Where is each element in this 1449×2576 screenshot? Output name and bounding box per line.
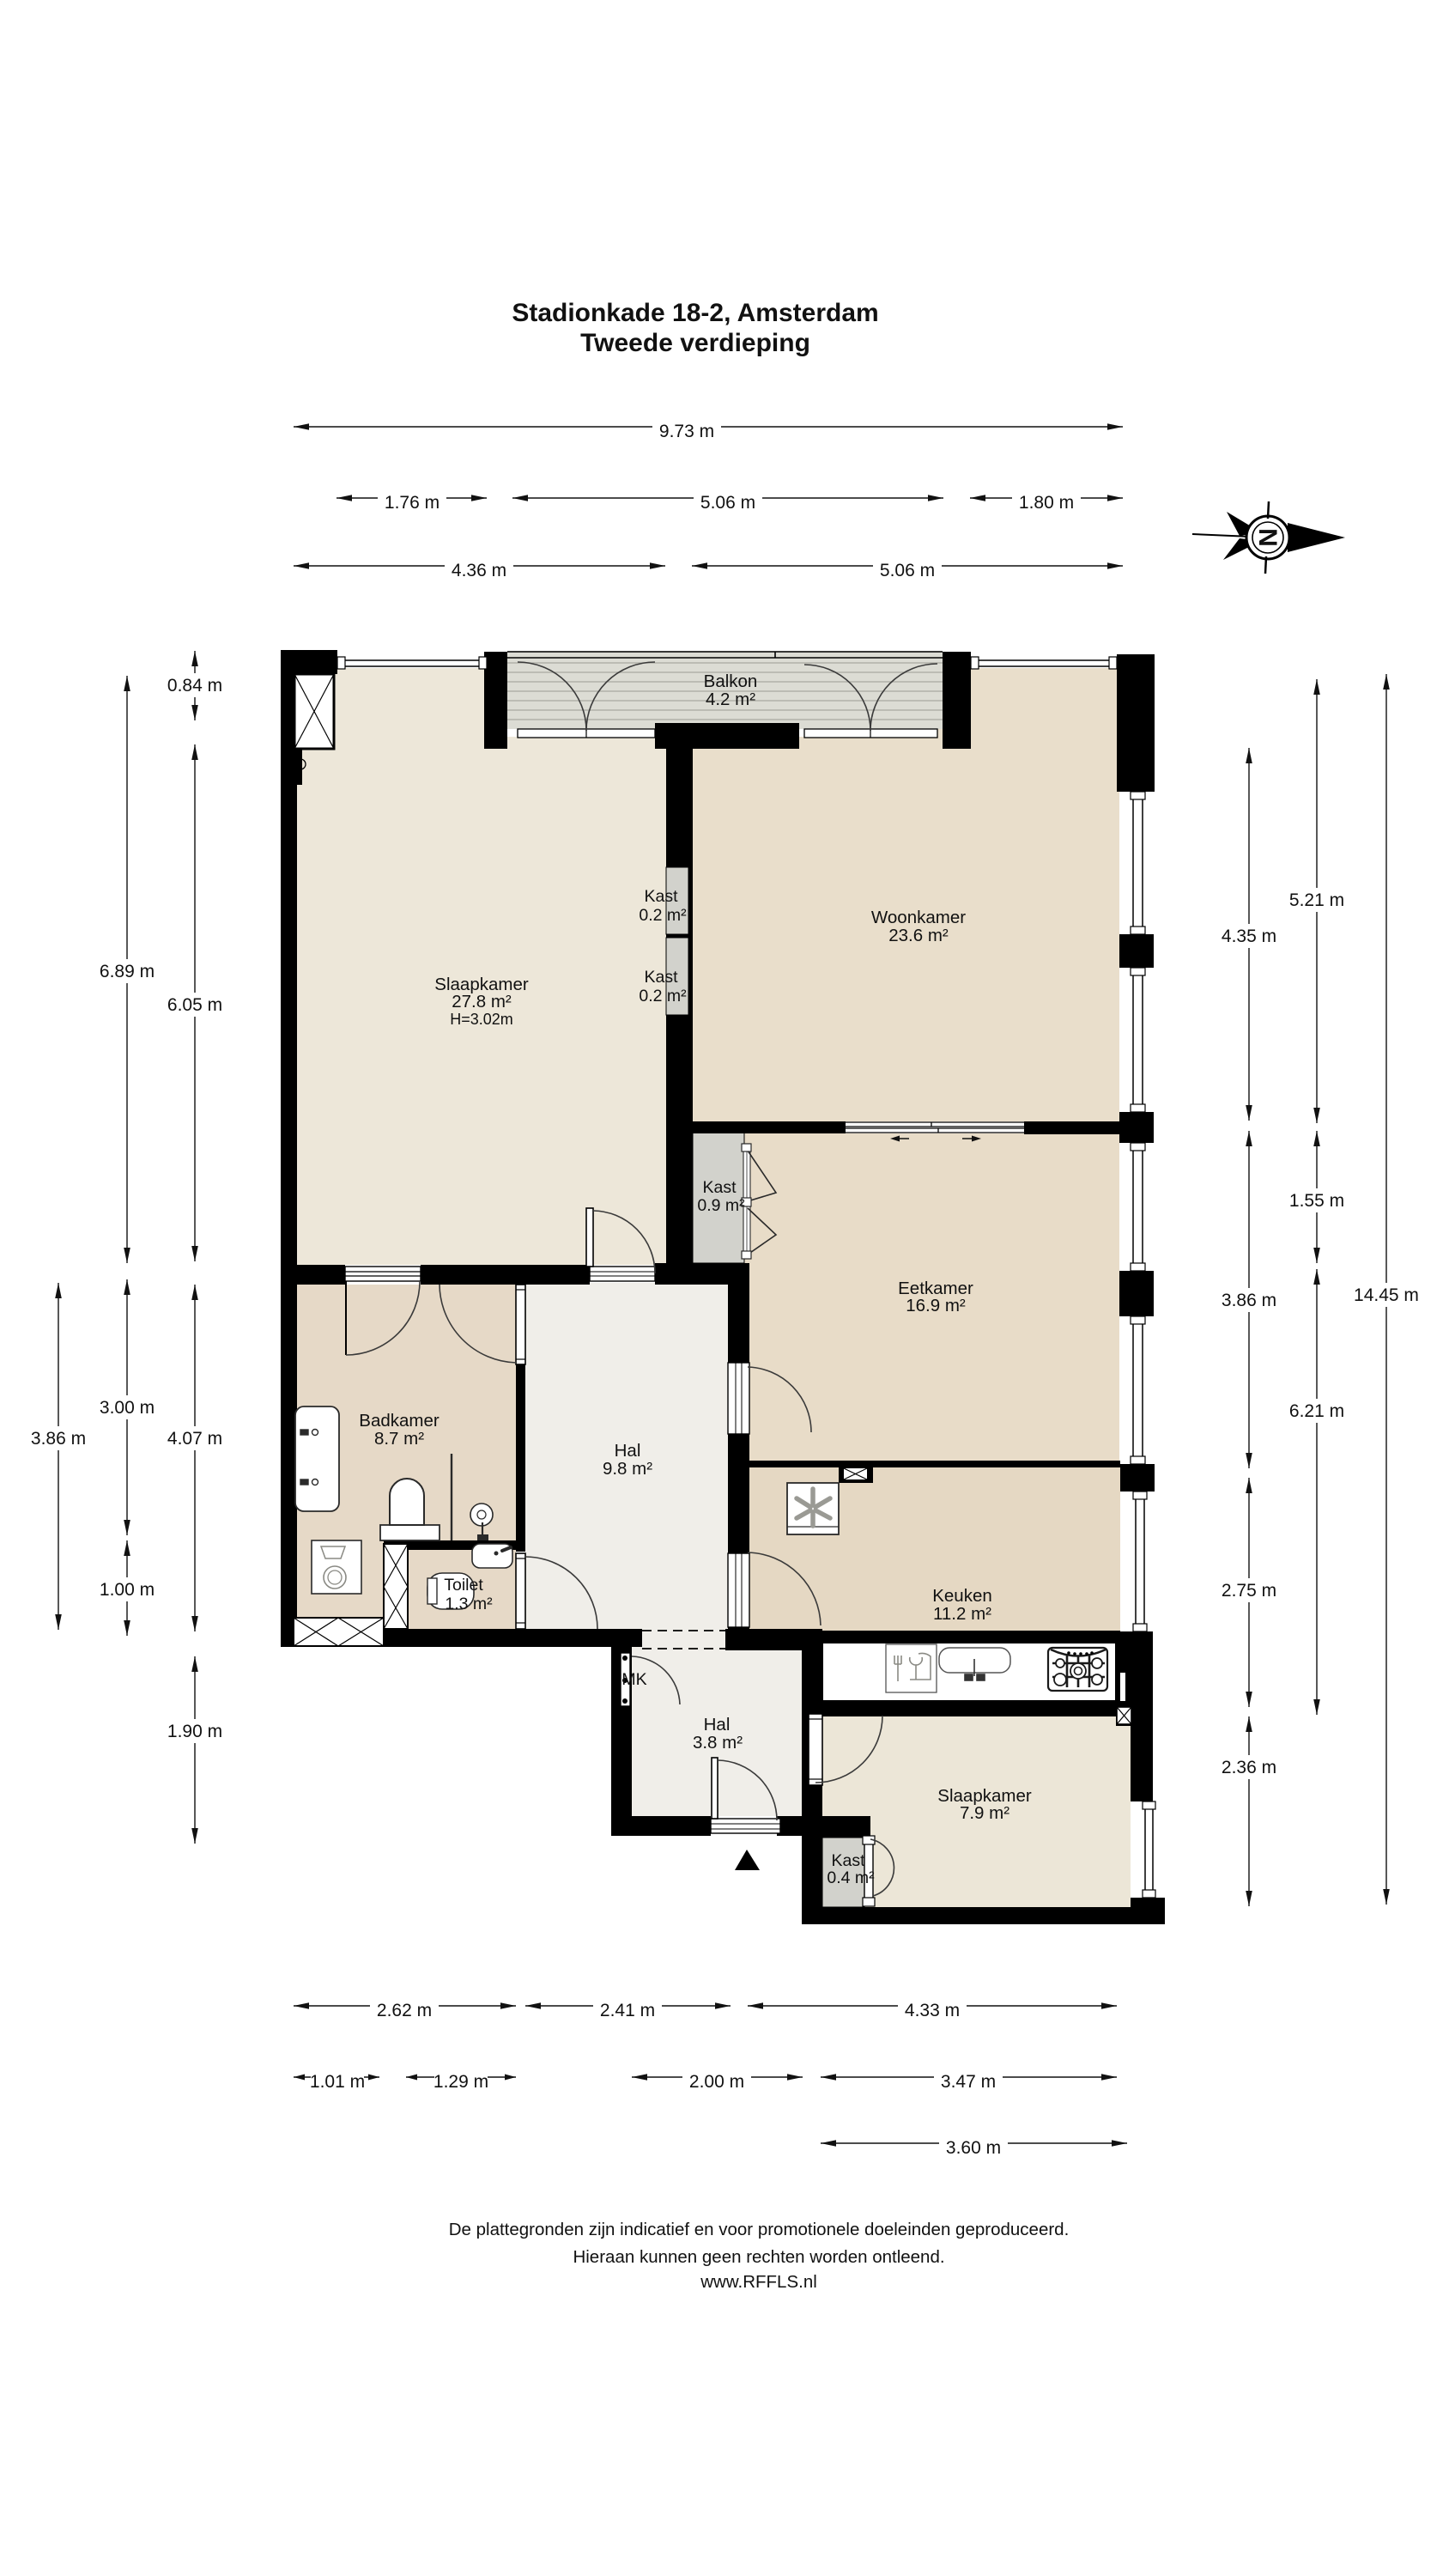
svg-text:Badkamer: Badkamer xyxy=(359,1411,440,1431)
svg-text:16.9 m²: 16.9 m² xyxy=(906,1296,966,1315)
svg-text:6.89 m: 6.89 m xyxy=(100,962,155,981)
svg-text:14.45 m: 14.45 m xyxy=(1354,1285,1419,1305)
svg-text:6.21 m: 6.21 m xyxy=(1289,1401,1344,1421)
svg-text:9.73 m: 9.73 m xyxy=(659,422,714,441)
svg-text:1.76 m: 1.76 m xyxy=(385,493,440,513)
svg-text:Hal: Hal xyxy=(704,1715,731,1735)
svg-text:1.01 m: 1.01 m xyxy=(310,2072,365,2092)
svg-text:1.00 m: 1.00 m xyxy=(100,1580,155,1600)
svg-text:8.7 m²: 8.7 m² xyxy=(374,1429,424,1449)
svg-text:5.21 m: 5.21 m xyxy=(1289,890,1344,910)
svg-text:N: N xyxy=(1253,528,1282,547)
svg-text:2.36 m: 2.36 m xyxy=(1222,1758,1276,1777)
svg-text:Kast: Kast xyxy=(644,968,678,987)
svg-text:3.86 m: 3.86 m xyxy=(31,1429,86,1449)
svg-text:5.06 m: 5.06 m xyxy=(880,561,935,580)
svg-text:Hieraan kunnen geen rechten wo: Hieraan kunnen geen rechten worden ontle… xyxy=(573,2247,944,2267)
svg-text:Woonkamer: Woonkamer xyxy=(871,908,966,927)
svg-text:5.06 m: 5.06 m xyxy=(700,493,755,513)
svg-text:De plattegronden zijn indicati: De plattegronden zijn indicatief en voor… xyxy=(449,2220,1070,2239)
svg-text:4.2 m²: 4.2 m² xyxy=(706,690,755,709)
svg-text:Kast: Kast xyxy=(702,1178,737,1197)
svg-text:www.RFFLS.nl: www.RFFLS.nl xyxy=(700,2272,817,2292)
svg-text:Kast: Kast xyxy=(644,887,678,906)
svg-text:0.2 m²: 0.2 m² xyxy=(639,906,687,925)
svg-text:0.84 m: 0.84 m xyxy=(167,676,222,696)
svg-text:0.2 m²: 0.2 m² xyxy=(639,987,687,1005)
svg-text:Stadionkade 18-2, Amsterdam: Stadionkade 18-2, Amsterdam xyxy=(512,299,878,327)
svg-text:3.00 m: 3.00 m xyxy=(100,1398,155,1418)
svg-text:7.9 m²: 7.9 m² xyxy=(960,1803,1009,1823)
svg-text:1.29 m: 1.29 m xyxy=(433,2072,488,2092)
svg-text:1.3 m²: 1.3 m² xyxy=(445,1595,493,1613)
svg-text:2.00 m: 2.00 m xyxy=(689,2072,744,2092)
svg-text:0.9 m²: 0.9 m² xyxy=(697,1196,745,1215)
svg-text:1.90 m: 1.90 m xyxy=(167,1722,222,1741)
svg-text:Balkon: Balkon xyxy=(704,671,758,691)
svg-text:3.86 m: 3.86 m xyxy=(1222,1291,1276,1310)
svg-text:1.80 m: 1.80 m xyxy=(1019,493,1074,513)
svg-text:3.47 m: 3.47 m xyxy=(941,2072,996,2092)
svg-text:3.60 m: 3.60 m xyxy=(946,2138,1001,2158)
svg-text:27.8 m²: 27.8 m² xyxy=(452,992,512,1012)
svg-text:4.36 m: 4.36 m xyxy=(452,561,506,580)
svg-text:Toilet: Toilet xyxy=(444,1576,483,1595)
svg-text:4.33 m: 4.33 m xyxy=(905,2001,960,2020)
svg-text:Tweede verdieping: Tweede verdieping xyxy=(580,329,810,357)
svg-text:Keuken: Keuken xyxy=(932,1586,992,1606)
svg-text:6.05 m: 6.05 m xyxy=(167,995,222,1015)
svg-text:2.41 m: 2.41 m xyxy=(600,2001,655,2020)
svg-text:MK: MK xyxy=(621,1670,646,1689)
svg-text:9.8 m²: 9.8 m² xyxy=(603,1459,652,1479)
svg-text:2.62 m: 2.62 m xyxy=(377,2001,432,2020)
svg-text:Kast: Kast xyxy=(831,1851,865,1870)
svg-text:Hal: Hal xyxy=(615,1441,641,1461)
svg-text:11.2 m²: 11.2 m² xyxy=(933,1604,991,1624)
svg-text:1.55 m: 1.55 m xyxy=(1289,1191,1344,1211)
svg-text:23.6 m²: 23.6 m² xyxy=(888,926,949,945)
svg-text:2.75 m: 2.75 m xyxy=(1222,1581,1276,1601)
svg-text:H=3.02m: H=3.02m xyxy=(450,1011,513,1028)
svg-text:0.4 m²: 0.4 m² xyxy=(827,1868,875,1887)
svg-text:3.8 m²: 3.8 m² xyxy=(693,1733,743,1753)
svg-text:4.35 m: 4.35 m xyxy=(1222,927,1276,946)
svg-text:4.07 m: 4.07 m xyxy=(167,1429,222,1449)
